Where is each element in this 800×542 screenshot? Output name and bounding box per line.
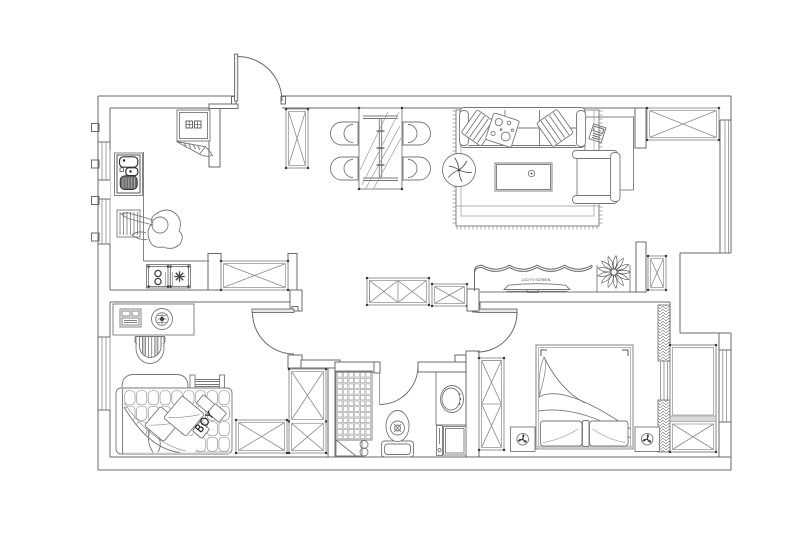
svg-text:.LCD TV SCREEN.: .LCD TV SCREEN. <box>521 278 552 282</box>
